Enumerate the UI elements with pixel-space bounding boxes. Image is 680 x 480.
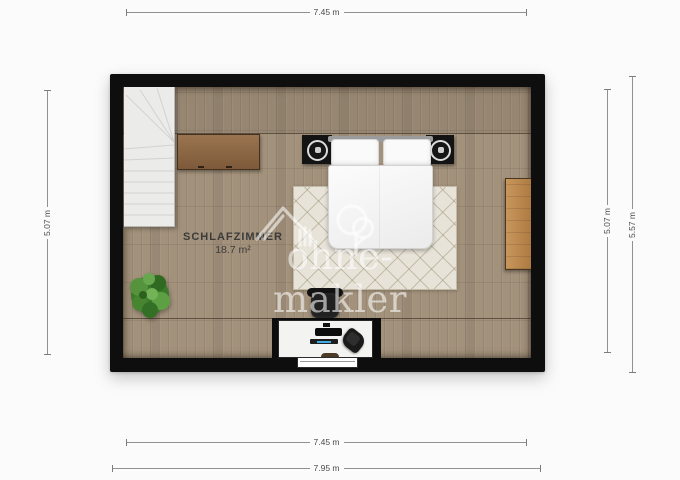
dimension-right-inner: 5.07 m <box>601 89 613 353</box>
staircase <box>124 87 175 227</box>
sideboard <box>177 134 260 170</box>
monitor-icon <box>315 328 342 336</box>
dimension-top: 7.45 m <box>126 7 527 17</box>
dimension-tick <box>604 352 611 353</box>
pillow <box>383 139 431 167</box>
wardrobe <box>505 178 531 270</box>
monitor-stand-icon <box>323 323 330 327</box>
dimension-tick <box>526 439 527 446</box>
dimension-label: 7.45 m <box>310 437 344 447</box>
sideboard-handle <box>198 166 204 168</box>
dimension-label: 5.07 m <box>42 207 52 239</box>
dimension-label: 7.45 m <box>310 7 344 17</box>
dimension-bottom-inner: 7.45 m <box>126 437 527 447</box>
potted-plant <box>127 270 173 320</box>
dimension-tick <box>526 9 527 16</box>
desk-side-chair <box>339 327 367 355</box>
desk <box>278 320 373 358</box>
speaker-icon <box>307 140 328 161</box>
watermark-text: ohne-makler <box>225 235 455 321</box>
dimension-tick <box>629 372 636 373</box>
dimension-right-outer: 5.57 m <box>626 76 638 373</box>
speaker-icon <box>430 140 451 161</box>
dimension-label: 7.95 m <box>310 463 344 473</box>
sloped-ceiling-zone <box>123 87 531 133</box>
keyboard-icon <box>310 339 338 344</box>
window <box>297 357 358 368</box>
pillow <box>331 139 379 167</box>
dimension-tick <box>44 354 51 355</box>
dimension-tick <box>540 465 541 472</box>
dimension-label: 5.57 m <box>627 209 637 241</box>
sideboard-handle <box>226 166 232 168</box>
dimension-left: 5.07 m <box>41 90 53 355</box>
dimension-label: 5.07 m <box>602 205 612 237</box>
dimension-bottom-outer: 7.95 m <box>112 463 541 473</box>
